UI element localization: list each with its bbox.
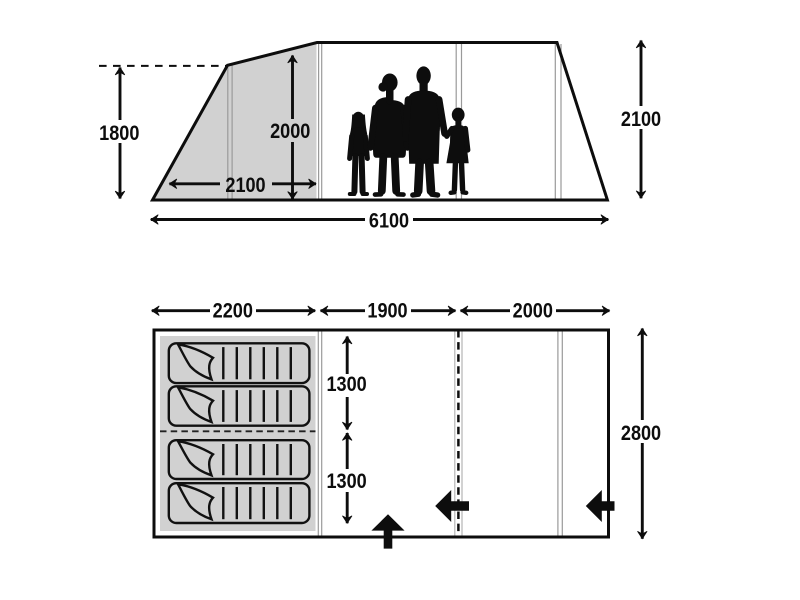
svg-text:2800: 2800 <box>621 422 661 445</box>
svg-text:2000: 2000 <box>513 299 553 322</box>
svg-text:2200: 2200 <box>213 299 253 322</box>
svg-text:1300: 1300 <box>326 470 366 493</box>
svg-text:2100: 2100 <box>225 174 265 197</box>
svg-text:6100: 6100 <box>369 209 409 232</box>
svg-text:2000: 2000 <box>270 120 310 143</box>
svg-text:1900: 1900 <box>367 299 407 322</box>
svg-text:1800: 1800 <box>99 122 139 145</box>
svg-text:2100: 2100 <box>621 108 661 131</box>
svg-text:1300: 1300 <box>326 373 366 396</box>
